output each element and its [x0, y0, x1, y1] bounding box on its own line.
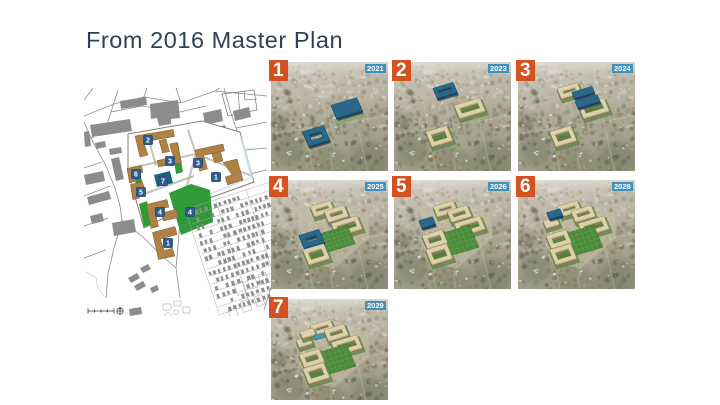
svg-text:2: 2	[146, 138, 150, 145]
svg-text:5: 5	[139, 190, 143, 197]
svg-text:4: 4	[158, 210, 162, 217]
svg-text:7: 7	[161, 179, 165, 186]
svg-text:6: 6	[134, 172, 138, 179]
svg-text:4: 4	[188, 210, 192, 217]
svg-text:1: 1	[166, 241, 170, 248]
svg-text:3: 3	[196, 161, 200, 168]
svg-text:3: 3	[168, 159, 172, 166]
svg-text:1: 1	[214, 175, 218, 182]
